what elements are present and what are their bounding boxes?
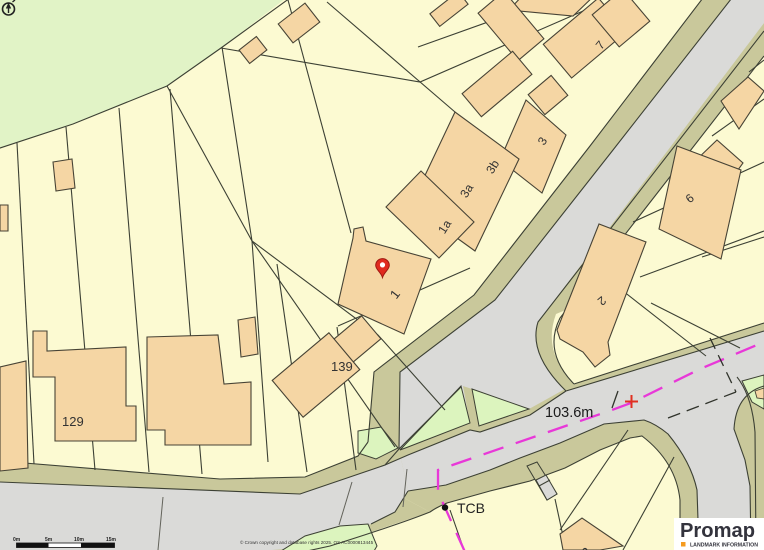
svg-text:15m: 15m [106,537,117,543]
svg-text:0m: 0m [13,537,21,543]
svg-text:TCB: TCB [457,500,485,516]
svg-text:103.6m: 103.6m [545,405,593,421]
svg-text:139: 139 [331,359,353,374]
svg-text:5m: 5m [45,537,53,543]
svg-text:Promap: Promap [680,520,755,542]
svg-text:10m: 10m [74,537,85,543]
svg-text:© Crown copyright and database: © Crown copyright and database rights 20… [240,539,374,545]
svg-text:129: 129 [62,414,84,429]
svg-text:LANDMARK INFORMATION: LANDMARK INFORMATION [690,543,758,549]
